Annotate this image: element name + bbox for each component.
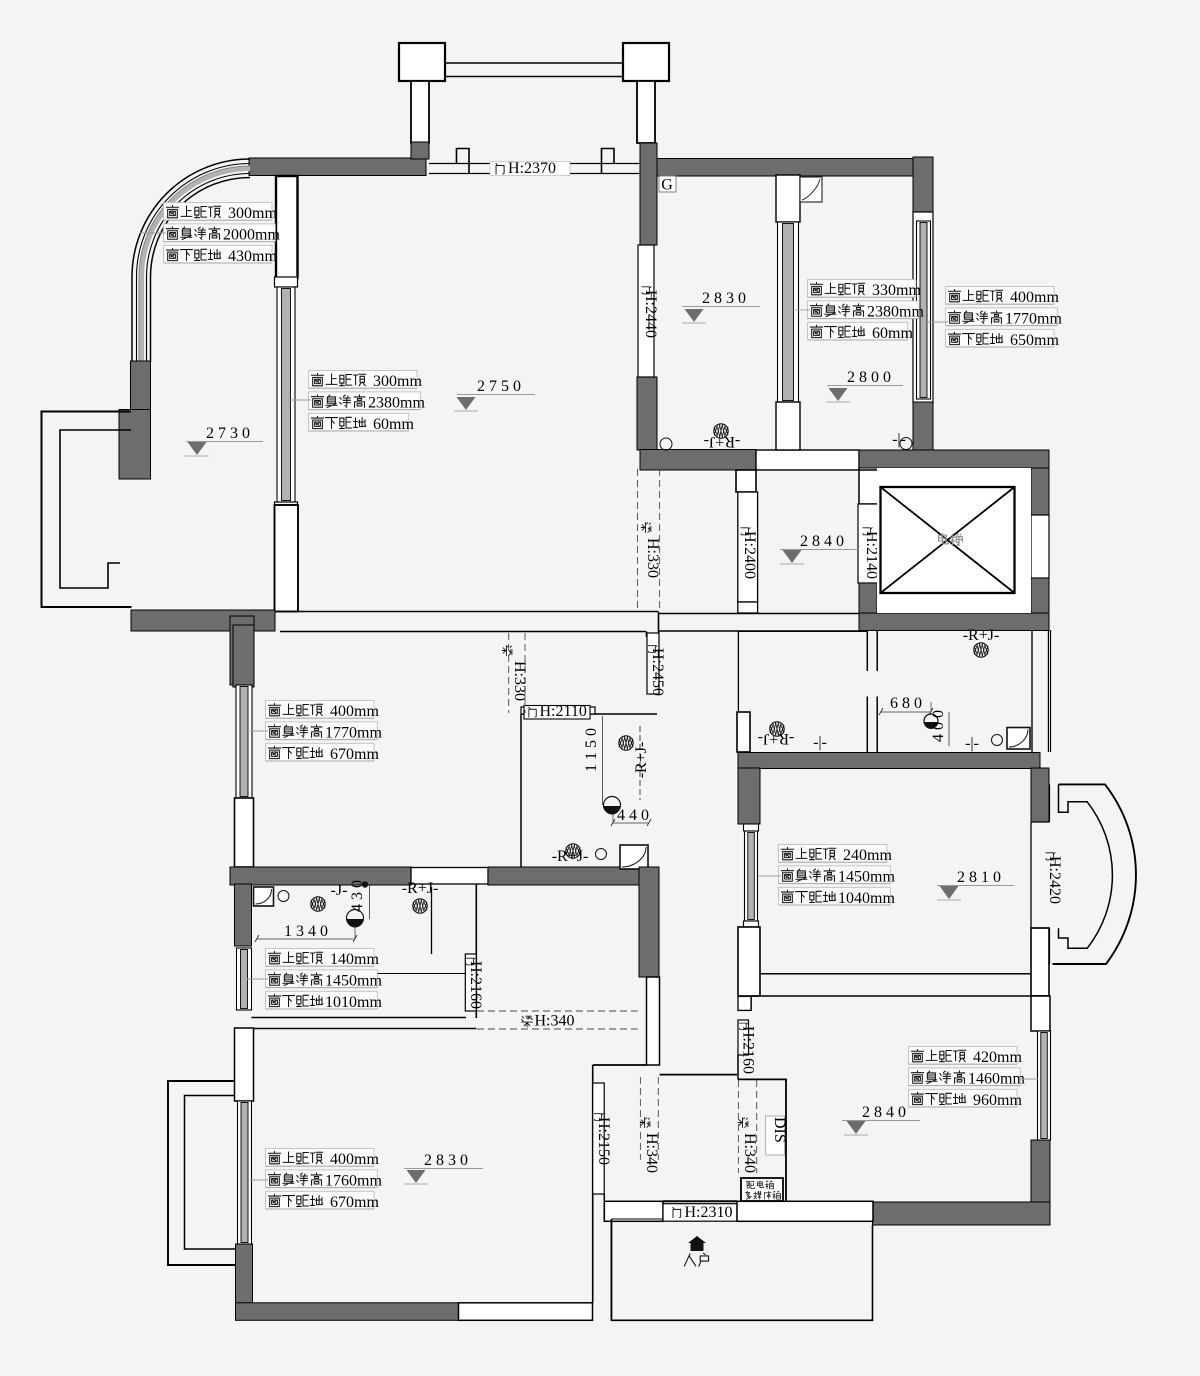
- svg-text:H:2400: H:2400: [741, 531, 758, 579]
- svg-text:H:2160: H:2160: [740, 1026, 757, 1074]
- svg-text:2 8 3 0: 2 8 3 0: [702, 290, 746, 307]
- svg-text:-|-: -|-: [813, 734, 827, 751]
- svg-text:300mm: 300mm: [373, 373, 422, 390]
- svg-text:1040mm: 1040mm: [838, 890, 895, 907]
- svg-text:60mm: 60mm: [373, 416, 414, 433]
- svg-text:60mm: 60mm: [872, 325, 913, 342]
- svg-text:2000mm: 2000mm: [223, 226, 280, 243]
- svg-text:-R+J-: -R+J-: [758, 730, 795, 747]
- svg-text:1770mm: 1770mm: [325, 724, 382, 741]
- svg-text:400mm: 400mm: [1010, 289, 1059, 306]
- svg-text:2380mm: 2380mm: [368, 394, 425, 411]
- svg-text:330mm: 330mm: [872, 282, 921, 299]
- svg-text:-R+J-: -R+J-: [963, 627, 1000, 644]
- svg-text:4 4 0: 4 4 0: [617, 807, 649, 824]
- svg-text:2 8 4 0: 2 8 4 0: [862, 1104, 906, 1121]
- svg-text:H:330: H:330: [644, 538, 661, 578]
- svg-text:H:340: H:340: [741, 1133, 758, 1173]
- svg-text:H:2370: H:2370: [508, 160, 556, 177]
- svg-text:1 3 4 0: 1 3 4 0: [284, 923, 328, 940]
- svg-text:670mm: 670mm: [330, 746, 379, 763]
- svg-text:430mm: 430mm: [228, 248, 277, 265]
- svg-text:1770mm: 1770mm: [1005, 310, 1062, 327]
- svg-text:-R+J-: -R+J-: [552, 848, 589, 865]
- svg-text:1450mm: 1450mm: [325, 972, 382, 989]
- svg-text:400mm: 400mm: [330, 1151, 379, 1168]
- svg-text:-R+J-: -R+J-: [402, 880, 439, 897]
- svg-text:H:340: H:340: [643, 1133, 660, 1173]
- svg-text:H:340: H:340: [535, 1013, 575, 1030]
- svg-text:300mm: 300mm: [228, 205, 277, 222]
- svg-text:-J-: -J-: [331, 882, 348, 899]
- svg-text:240mm: 240mm: [843, 847, 892, 864]
- svg-text:650mm: 650mm: [1010, 332, 1059, 349]
- svg-text:2 8 4 0: 2 8 4 0: [800, 533, 844, 550]
- svg-text:1760mm: 1760mm: [325, 1172, 382, 1189]
- svg-text:2 8 1 0: 2 8 1 0: [957, 869, 1001, 886]
- svg-text:H:330: H:330: [511, 661, 528, 701]
- svg-text:2 7 3 0: 2 7 3 0: [206, 425, 250, 442]
- svg-text:1460mm: 1460mm: [968, 1070, 1025, 1087]
- svg-text:4 0 0: 4 0 0: [930, 710, 947, 742]
- svg-text:-|-: -|-: [965, 735, 979, 752]
- svg-text:H:2450: H:2450: [649, 648, 666, 696]
- svg-text:DIS: DIS: [771, 1117, 788, 1143]
- svg-text:1 1 5 0: 1 1 5 0: [583, 728, 600, 772]
- svg-text:2 7 5 0: 2 7 5 0: [477, 378, 521, 395]
- svg-text:G: G: [661, 177, 673, 194]
- svg-text:670mm: 670mm: [330, 1194, 379, 1211]
- svg-text:420mm: 420mm: [973, 1049, 1022, 1066]
- svg-text:-R+J-: -R+J-: [704, 433, 741, 450]
- svg-text:960mm: 960mm: [973, 1092, 1022, 1109]
- svg-text:-|-: -|-: [892, 431, 906, 448]
- svg-text:H:2150: H:2150: [595, 1117, 612, 1165]
- svg-text:6 8 0: 6 8 0: [890, 695, 922, 712]
- svg-text:H:2110: H:2110: [540, 703, 587, 720]
- svg-text:400mm: 400mm: [330, 703, 379, 720]
- svg-text:1010mm: 1010mm: [325, 994, 382, 1011]
- svg-text:2 8 0 0: 2 8 0 0: [847, 369, 891, 386]
- svg-text:H:2160: H:2160: [467, 961, 484, 1009]
- svg-text:140mm: 140mm: [330, 951, 379, 968]
- svg-text:2 8 3 0: 2 8 3 0: [424, 1152, 468, 1169]
- svg-text:H:2440: H:2440: [642, 290, 659, 338]
- svg-text:1450mm: 1450mm: [838, 868, 895, 885]
- svg-text:H:2310: H:2310: [685, 1204, 733, 1221]
- svg-text:H:2420: H:2420: [1046, 856, 1063, 904]
- svg-text:-R+J-: -R+J-: [633, 742, 650, 779]
- svg-text:2380mm: 2380mm: [867, 303, 924, 320]
